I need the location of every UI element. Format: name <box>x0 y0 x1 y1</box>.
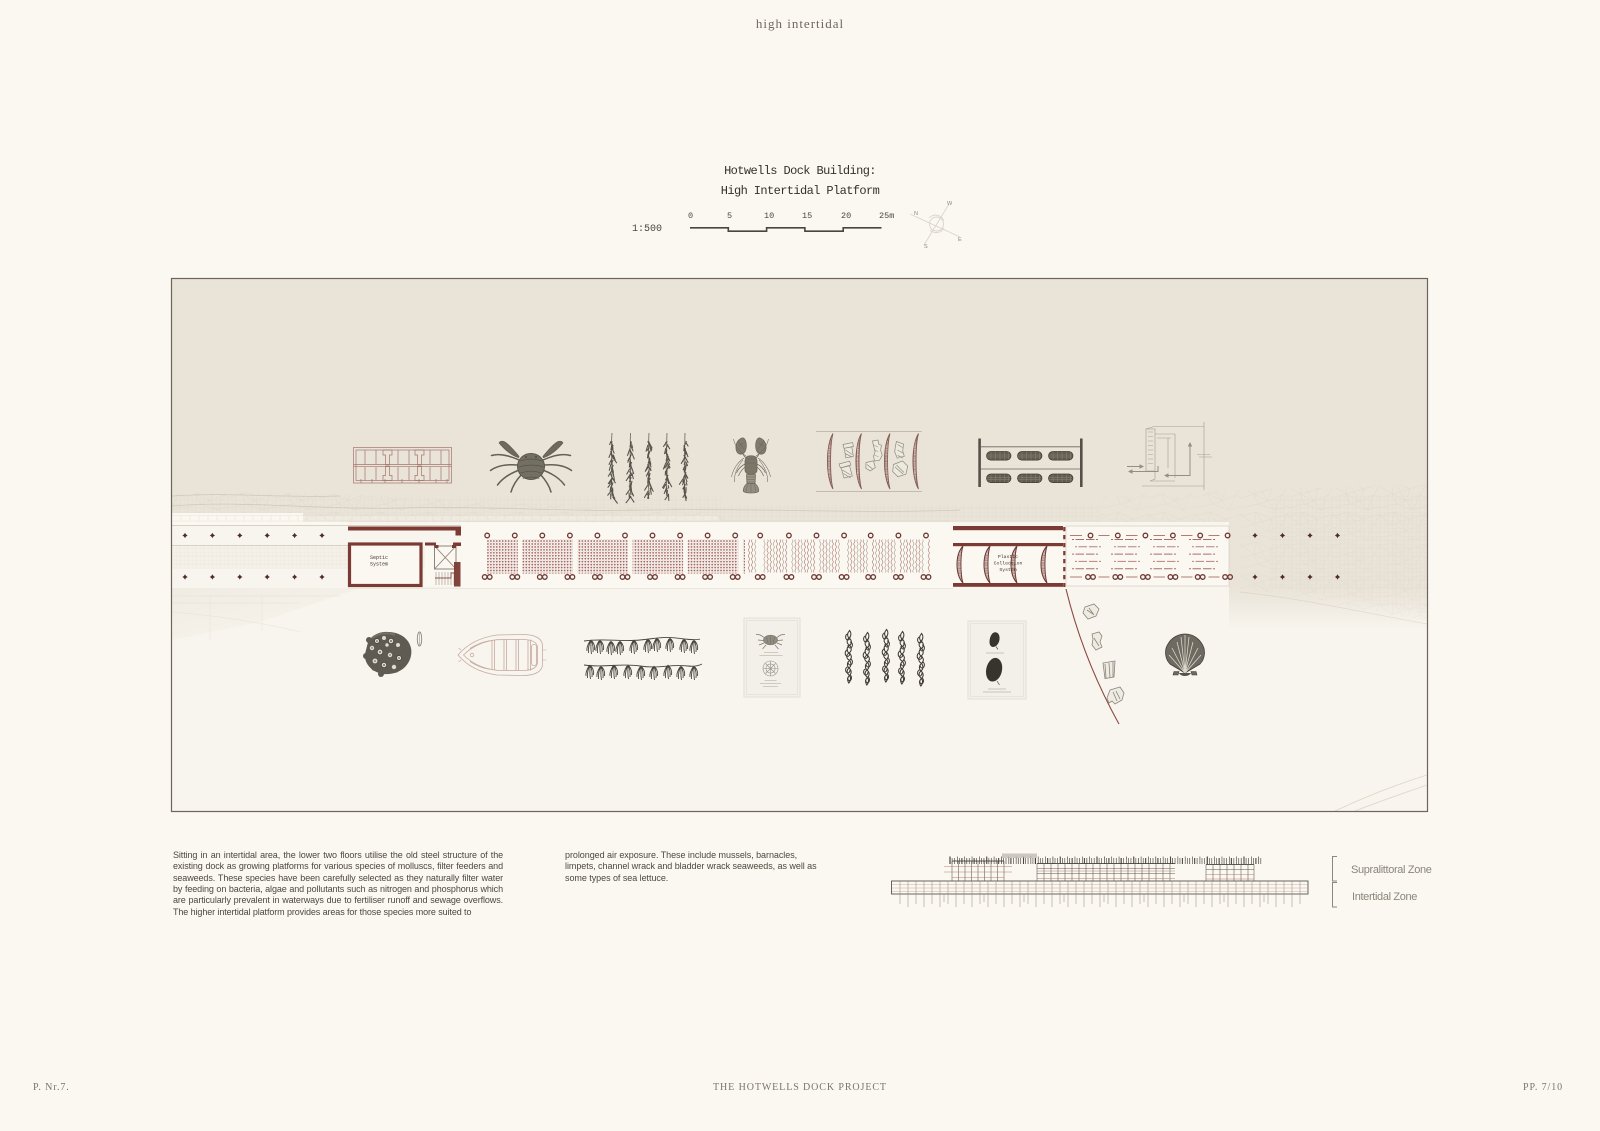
svg-text:Collection: Collection <box>994 561 1023 567</box>
svg-text:System: System <box>999 567 1016 573</box>
svg-text:N: N <box>914 211 918 217</box>
svg-text:E: E <box>958 237 962 243</box>
svg-text:Septic: Septic <box>370 555 388 561</box>
svg-text:S: S <box>924 244 928 250</box>
svg-text:Plastic: Plastic <box>998 554 1018 560</box>
svg-text:System: System <box>370 562 388 568</box>
svg-text:W: W <box>947 201 953 207</box>
